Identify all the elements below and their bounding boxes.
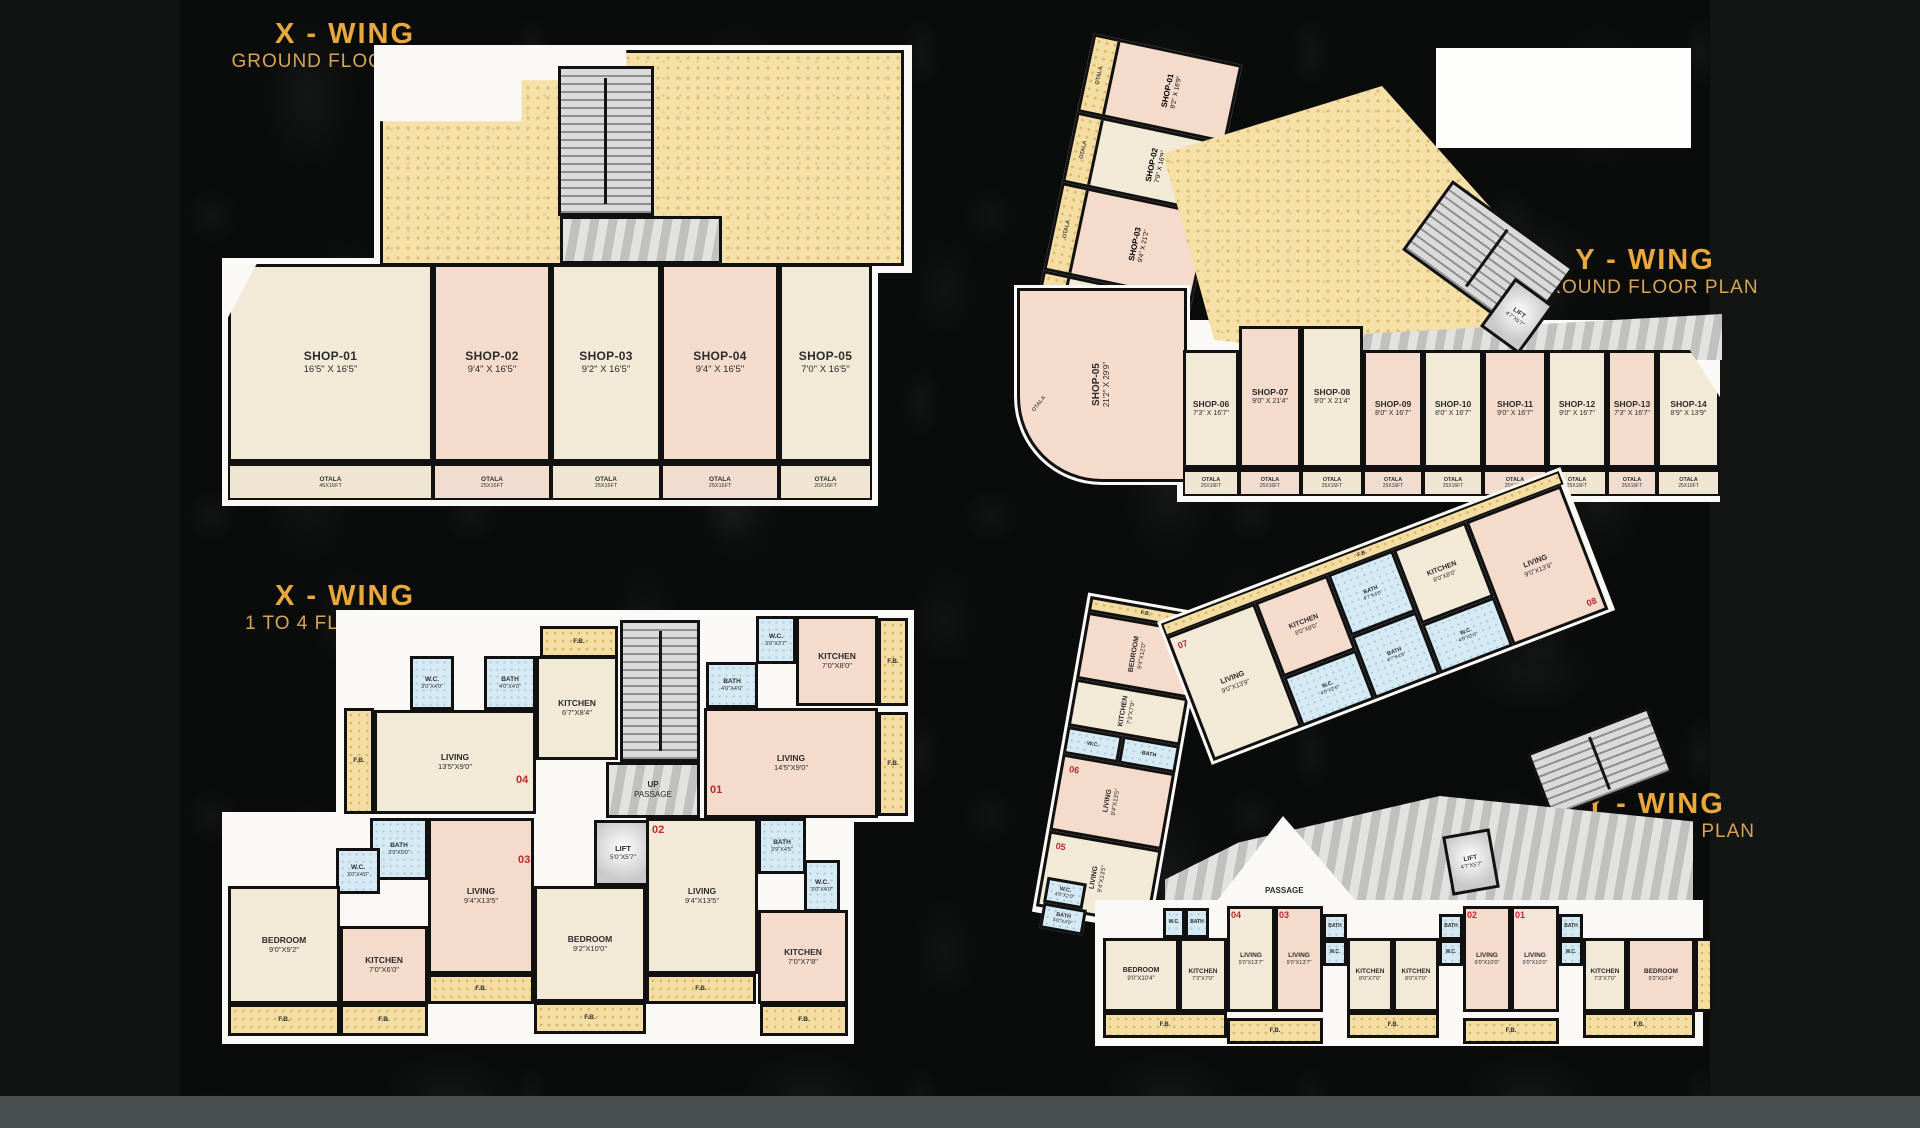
flower-bed — [1695, 938, 1713, 1012]
room-wc-y02: W.C. — [1439, 940, 1463, 966]
ywing-ground-plan: OTALA SHOP-019'2" X 16'9" OTALA SHOP-027… — [1015, 48, 1720, 500]
otala-strip: OTALA25X16FT — [1239, 468, 1301, 496]
unit-number-y01: 01 — [1515, 910, 1525, 920]
room-living-03: LIVING9'4"X13'5" — [428, 818, 534, 974]
otala-strip: OTALA25X16FT — [1363, 468, 1423, 496]
shop-08: SHOP-089'0" X 21'4" — [1301, 326, 1363, 468]
room-bedroom-y01: BEDROOM9'2"X10'4" — [1627, 938, 1695, 1012]
otala-strip: OTALA25X16FT — [433, 462, 551, 500]
room-bath-04: BATH4'0"X4'0" — [484, 656, 536, 710]
flower-bed: F.B. — [344, 708, 374, 814]
otala-strip: OTALA20X16FT — [779, 462, 872, 500]
room-wc-y04: W.C. — [1163, 908, 1185, 938]
up-label: UP — [647, 781, 658, 790]
right-margin — [1710, 0, 1920, 1096]
room-kitchen-01: KITCHEN7'0"X8'0" — [796, 616, 878, 706]
shop-01: SHOP-01 16'5" X 16'5" — [228, 264, 433, 462]
room-living-y02: LIVING9'0"X10'0" — [1463, 906, 1511, 1012]
room-bath-y03: BATH — [1323, 914, 1347, 940]
room-kitchen-04: KITCHEN6'7"X8'4" — [536, 656, 618, 760]
room-living-02: LIVING9'4"X13'5" — [646, 818, 758, 974]
unit-number-08: 08 — [1585, 595, 1598, 608]
xwing-ground-plan: LIFT 5'0"X5'7" SHOP-01 16'5" X 16'5" SHO… — [228, 50, 918, 502]
unit-number-y02: 02 — [1467, 910, 1477, 920]
room-wc-y01: W.C. — [1559, 940, 1583, 966]
bottom-bar — [0, 1096, 1920, 1128]
otala-strip: OTALA25X16FT — [1423, 468, 1483, 496]
room-wc-03: W.C.3'0"X4'0" — [336, 848, 380, 894]
otala-strip: OTALA25X16FT — [1301, 468, 1363, 496]
passage-label: PASSAGE — [1265, 886, 1304, 895]
otala-strip: OTALA25X16FT — [1607, 468, 1657, 496]
room-wc-y03: W.C. — [1323, 940, 1347, 966]
lift: LIFT 5'0"X5'7" — [594, 820, 652, 886]
flower-bed: F.B. — [428, 974, 534, 1004]
room-bath-y02: BATH — [1439, 914, 1463, 940]
room-bath-y01: BATH — [1559, 914, 1583, 940]
ywing-floor-plan: F.B. BEDROOM9'4"X12'0" KITCHEN7'3"X7'9" … — [1015, 608, 1720, 1048]
flower-bed: F.B. — [1583, 1012, 1695, 1038]
room-kitchen-02: KITCHEN7'0"X7'8" — [758, 910, 848, 1004]
flower-bed: F.B. — [878, 618, 908, 706]
flower-bed: F.B. — [760, 1004, 848, 1036]
unit-number-y03: 03 — [1279, 910, 1289, 920]
room-wc-02: W.C.3'0"X4'0" — [804, 860, 840, 912]
room-living-y04: LIVING9'0"X13'7" — [1227, 906, 1275, 1012]
lift: LIFT 4'7"X5'7" — [1442, 828, 1500, 895]
flower-bed: F.B. — [534, 1002, 646, 1034]
unit-number-07: 07 — [1176, 638, 1189, 651]
floor-plan-sheet: X - WING GROUND FLOOR PLAN Y - WING GROU… — [0, 0, 1920, 1128]
staircase — [1527, 707, 1673, 819]
room-living-y01: LIVING9'0"X10'0" — [1511, 906, 1559, 1012]
otala-strip: OTALA25X16FT — [1183, 468, 1239, 496]
flower-bed: F.B. — [646, 974, 756, 1004]
room-living-01: LIVING14'5"X9'0" — [704, 708, 878, 818]
left-margin — [0, 0, 180, 1096]
shop-02: SHOP-02 9'4" X 16'5" — [433, 264, 551, 462]
staircase — [620, 620, 700, 762]
flower-bed: F.B. — [228, 1004, 340, 1036]
flower-bed: F.B. — [1347, 1012, 1439, 1038]
room-bath-02: BATH3'9"X4'5" — [758, 818, 806, 874]
room-bath-01: BATH4'0"X4'0" — [706, 662, 758, 708]
shop-05: SHOP-05 7'0" X 16'5" — [779, 264, 872, 462]
unit-number-06: 06 — [1068, 764, 1080, 776]
flower-bed: F.B. — [1463, 1018, 1559, 1044]
shop-03: SHOP-03 9'2" X 16'5" — [551, 264, 661, 462]
otala-strip: OTALA25X16FT — [551, 462, 661, 500]
otala-strip: OTALA46X16FT — [228, 462, 433, 500]
shop-04: SHOP-04 9'4" X 16'5" — [661, 264, 779, 462]
passage-label: PASSAGE — [634, 791, 672, 800]
shop-06: SHOP-067'3" X 16'7" — [1183, 350, 1239, 468]
otala-strip: OTALA25X16FT — [1657, 468, 1720, 496]
unit-number-02: 02 — [652, 824, 664, 836]
shop-05: SHOP-0521'2" X 29'9" OTALA — [1017, 288, 1187, 482]
shop-12: SHOP-129'0" X 16'7" — [1547, 350, 1607, 468]
room-bedroom-02: BEDROOM9'2"X10'0" — [534, 886, 646, 1002]
unit-number-y04: 04 — [1231, 910, 1241, 920]
room-living-y03: LIVING9'0"X13'7" — [1275, 906, 1323, 1012]
flower-bed: F.B. — [540, 626, 618, 658]
xwing-floor-plan: F.B. W.C.3'0"X4'0" BATH4'0"X4'0" F.B. KI… — [228, 608, 928, 1048]
room-bath-y04: BATH — [1185, 908, 1209, 938]
room-living-04: LIVING13'5"X9'0" — [374, 710, 536, 814]
shop-10: SHOP-108'0" X 16'7" — [1423, 350, 1483, 468]
unit-number-05: 05 — [1055, 841, 1067, 853]
flower-bed: F.B. — [1227, 1018, 1323, 1044]
flower-bed: F.B. — [340, 1004, 428, 1036]
room-bedroom-y04: BEDROOM9'0"X10'4" — [1103, 938, 1179, 1012]
flower-bed: F.B. — [878, 712, 908, 816]
shop-11: SHOP-119'0" X 16'7" — [1483, 350, 1547, 468]
room-kitchen-y04: KITCHEN7'3"X7'0" — [1179, 938, 1227, 1012]
shop-07: SHOP-079'0" X 21'4" — [1239, 326, 1301, 468]
room-kitchen-y01: KITCHEN7'3"X7'0" — [1583, 938, 1627, 1012]
room-bedroom-03: BEDROOM9'0"X9'2" — [228, 886, 340, 1004]
room-kitchen-y03: KITCHEN8'0"X7'0" — [1347, 938, 1393, 1012]
shop-09: SHOP-098'0" X 16'7" — [1363, 350, 1423, 468]
passage: UP PASSAGE — [606, 762, 700, 818]
otala-label: OTALA — [1031, 395, 1047, 413]
unit-number-01: 01 — [710, 784, 722, 796]
stair-landing — [560, 216, 722, 264]
flower-bed: F.B. — [1103, 1012, 1227, 1038]
otala-strip: OTALA25X16FT — [661, 462, 779, 500]
staircase — [558, 66, 654, 216]
room-kitchen-y02: KITCHEN8'0"X7'0" — [1393, 938, 1439, 1012]
shop-13: SHOP-137'3" X 16'7" — [1607, 350, 1657, 468]
unit-number-03: 03 — [518, 854, 530, 866]
room-wc-04: W.C.3'0"X4'0" — [410, 656, 454, 710]
unit-number-04: 04 — [516, 774, 528, 786]
room-wc-01: W.C.3'0"X3'7" — [756, 616, 796, 664]
room-kitchen-03: KITCHEN7'0"X6'0" — [340, 926, 428, 1004]
